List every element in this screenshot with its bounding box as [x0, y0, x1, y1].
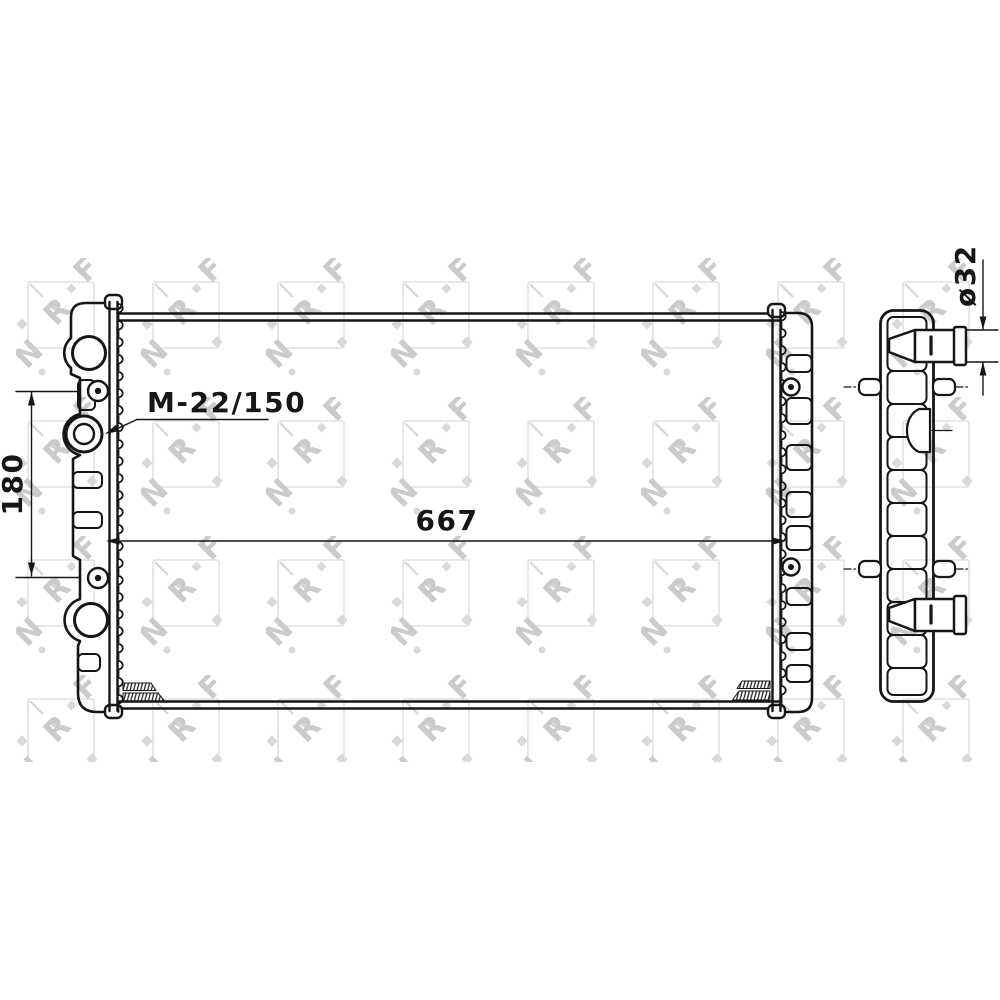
- filler-neck-circle: [73, 337, 106, 370]
- thread-port-circle: [66, 416, 102, 452]
- thread-spec-label: M-22/150: [147, 386, 306, 419]
- radiator-drawing-page: N R F: [0, 0, 1000, 1000]
- drain-port-circle: [75, 604, 108, 637]
- clamp-bottom-right: [933, 561, 955, 577]
- pin-spacing-label: 180: [0, 453, 29, 516]
- pipe-diameter-label: ø32: [949, 244, 982, 307]
- mounting-pin-bottom-left: [88, 568, 108, 588]
- radiator-technical-drawing: N R F: [0, 0, 1000, 1000]
- clamp-top-right: [933, 379, 955, 395]
- mounting-pin-top-right: [783, 379, 800, 396]
- clamp-top-left: [859, 379, 881, 395]
- clamp-bottom-left: [859, 561, 881, 577]
- mounting-pin-bottom-right: [783, 559, 800, 576]
- mounting-pin-top-left: [88, 381, 108, 401]
- core-width-label: 667: [416, 504, 479, 537]
